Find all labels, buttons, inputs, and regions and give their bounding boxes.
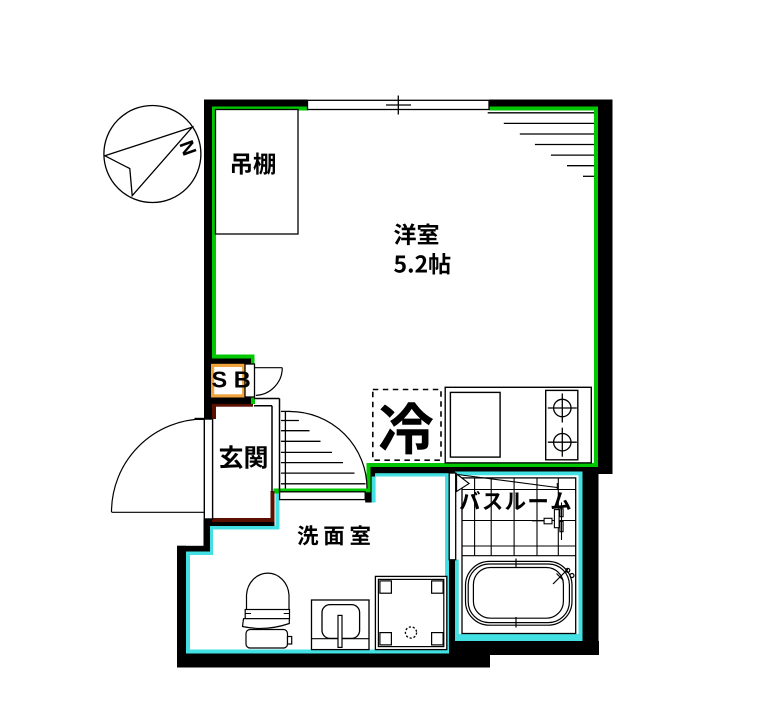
svg-text:S B: S B [212, 366, 251, 392]
